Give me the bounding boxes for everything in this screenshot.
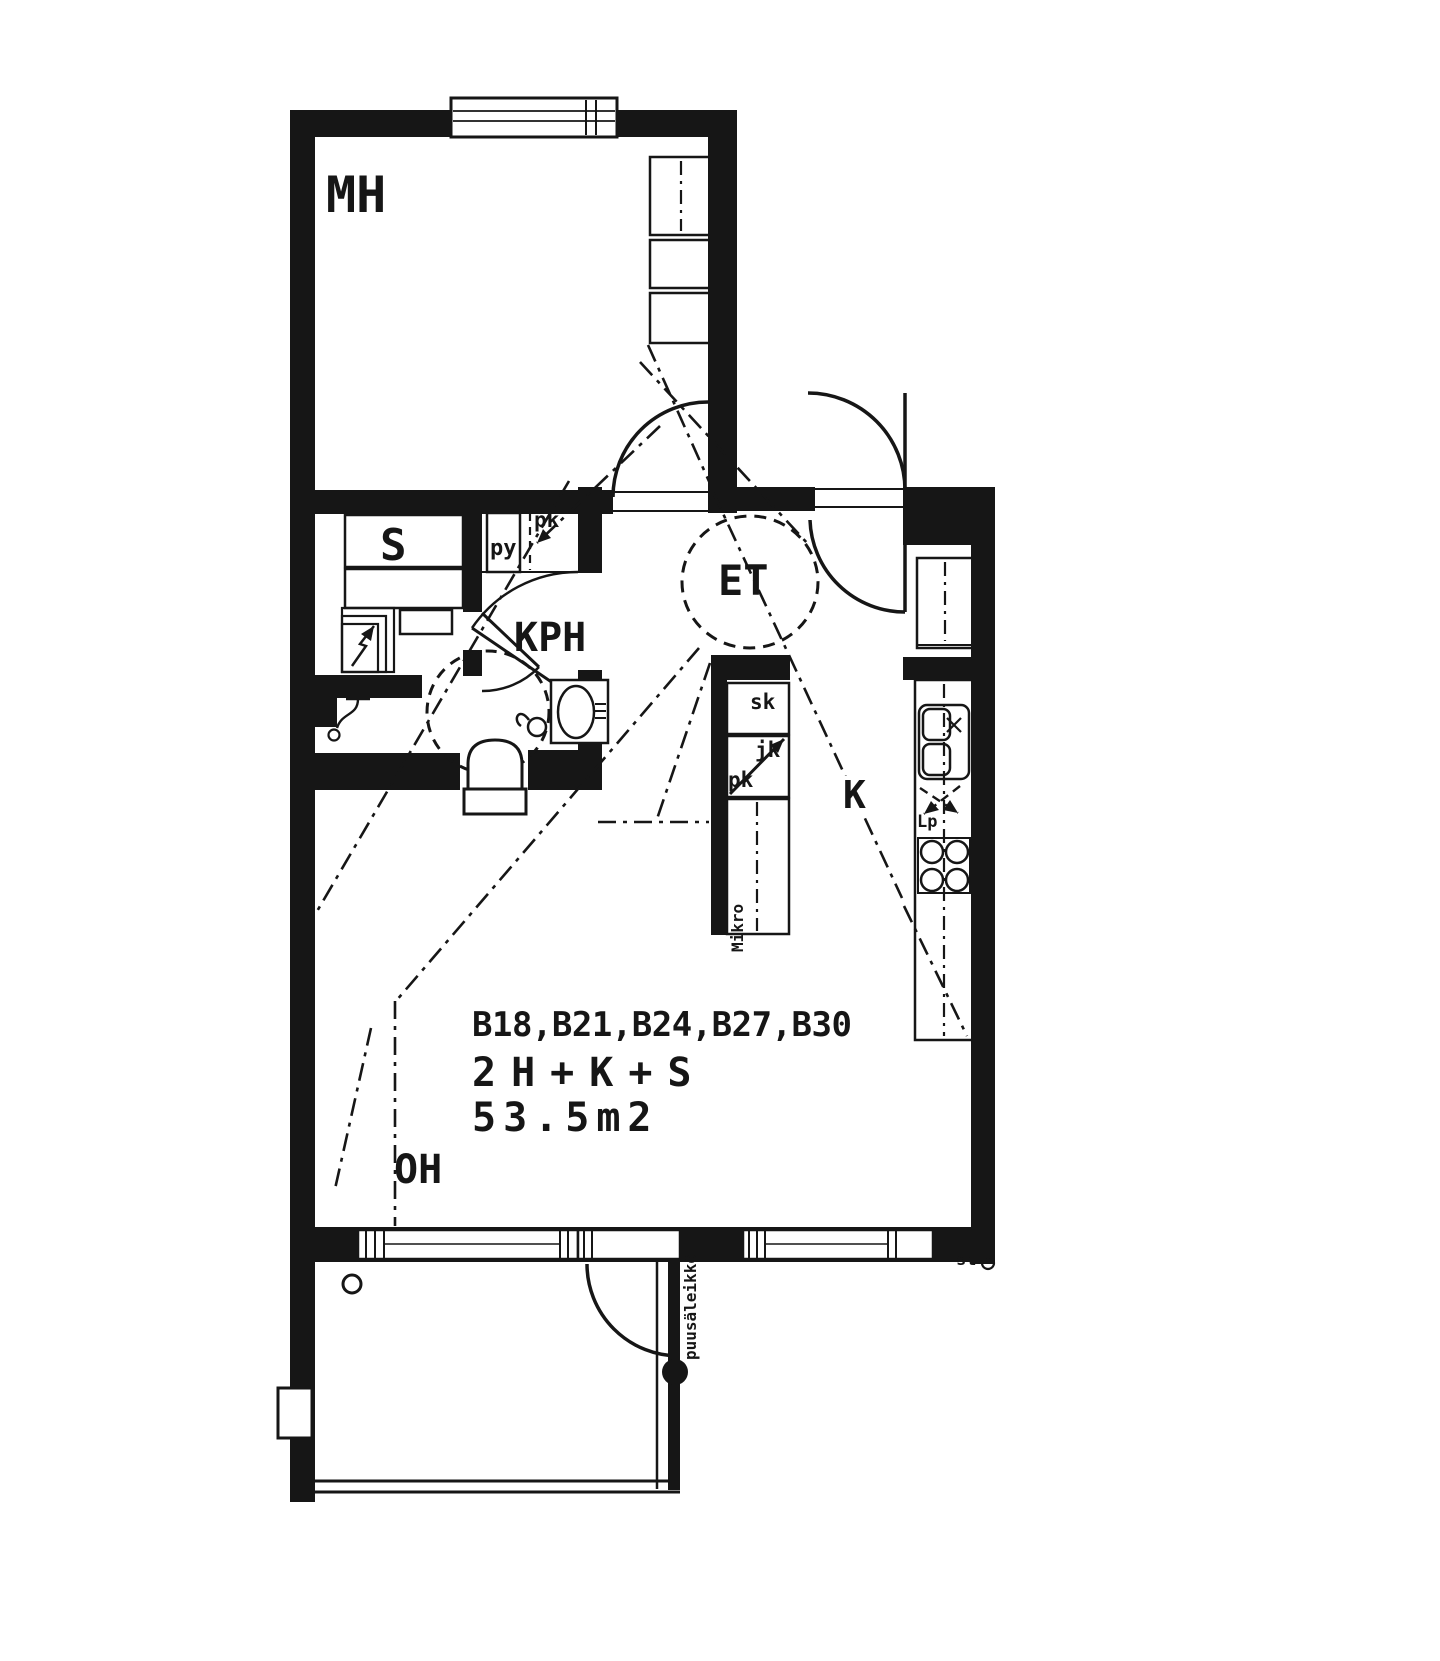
dishwasher-label: Lp: [917, 814, 937, 831]
balcony-fixtures: [278, 1257, 994, 1492]
bedroom-window: [451, 98, 617, 137]
room-label-living-room: OH: [394, 1150, 442, 1190]
sauna-bench-lower: [345, 569, 463, 608]
bedroom-closets: [650, 157, 712, 343]
living-room-window-right: [743, 1230, 933, 1259]
apartment-area: 53.5m2: [472, 1098, 659, 1138]
washbasin: [551, 680, 608, 743]
washing-machine-label: py: [490, 538, 517, 560]
cleaning-cupboard-label: sk: [750, 692, 775, 713]
kitchen-fixtures: [727, 680, 973, 1040]
floor-drain-2: [517, 714, 546, 736]
room-label-sauna: S: [380, 524, 407, 568]
riser-label: st: [956, 1252, 976, 1269]
room-label-entrance-hall: ET: [718, 560, 769, 602]
walls: [290, 110, 995, 1502]
balcony-lattice-label: puusäleikkö: [683, 1254, 699, 1360]
hall-wardrobe: [917, 558, 973, 648]
room-label-kitchen: K: [840, 776, 869, 814]
microwave-label: Mikro: [730, 904, 746, 952]
toilet: [464, 740, 526, 814]
balcony-drain: [343, 1275, 361, 1293]
room-configuration: 2H+K+S: [472, 1053, 707, 1093]
wall-ladder-bracket: [278, 1388, 312, 1438]
balcony-post: [662, 1359, 688, 1385]
fridge-label: jk: [755, 740, 780, 761]
balcony-door-threshold: [578, 1230, 680, 1259]
apartment-numbers: B18,B21,B24,B27,B30: [472, 1008, 851, 1042]
laundry-reservation-label: pk: [534, 510, 559, 531]
sauna-heater: [342, 608, 394, 672]
balcony-door: [587, 1264, 679, 1356]
freezer-label: pk: [728, 770, 753, 791]
floor-plan: MH S KPH ET K OH py pk sk jk pk Mikro Lp…: [0, 0, 1440, 1661]
room-label-bedroom: MH: [326, 170, 386, 220]
sauna-step: [400, 610, 452, 634]
floor-plan-drawing: [0, 0, 1440, 1661]
entrance-door: [808, 393, 905, 612]
living-room-window-left: [358, 1230, 578, 1259]
room-label-bathroom: KPH: [514, 618, 586, 658]
